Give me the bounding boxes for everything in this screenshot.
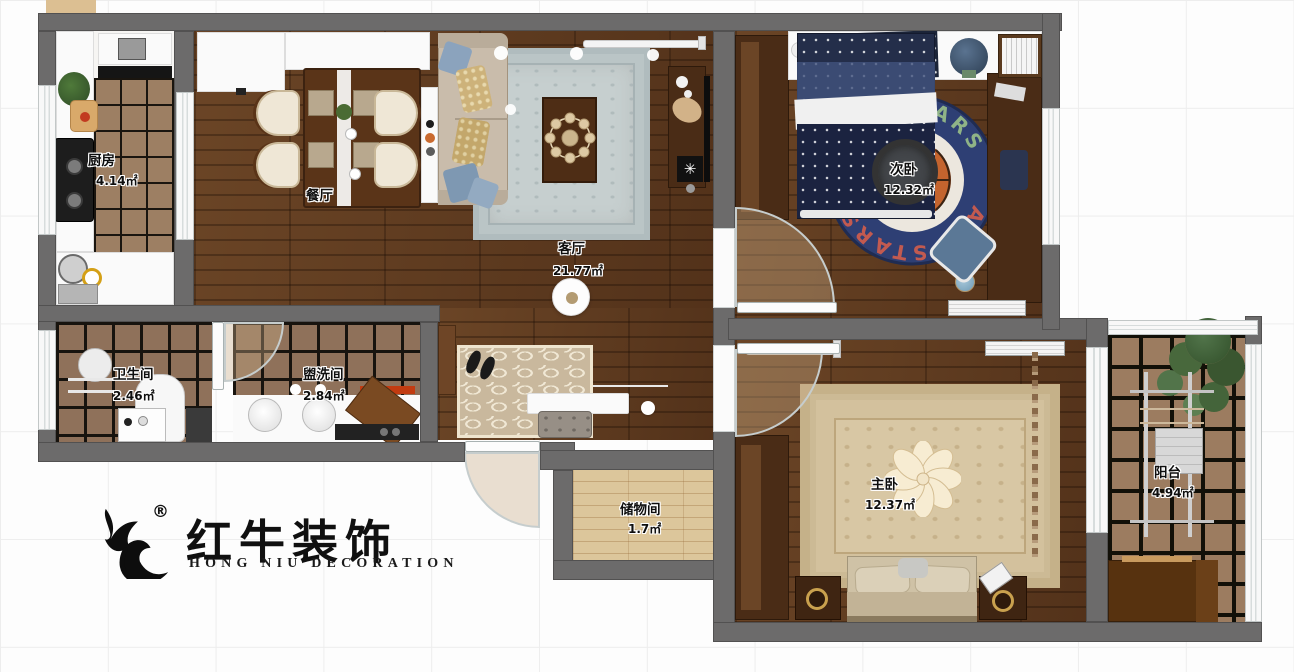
kitchen-window: [38, 85, 56, 235]
shoe-cabinet: [438, 325, 456, 395]
bed2-foot-sheet: [800, 210, 932, 218]
bedroom2-door-opening: [713, 228, 735, 308]
curtain-hook: [698, 36, 706, 50]
dining-chair: [256, 90, 300, 136]
room-label-kitchen: 厨房: [88, 149, 115, 169]
stove-burner: [66, 192, 83, 209]
washroom-mat: [335, 424, 419, 440]
nightstand-lamp: [806, 588, 828, 610]
wall-socket: [236, 88, 246, 95]
rack-crossbar: [1130, 390, 1214, 393]
wall-storage-top: [540, 450, 735, 470]
star-art-decor: ✳: [677, 156, 703, 182]
wall-bottom: [713, 622, 1262, 642]
room-label-master: 主卧: [871, 473, 898, 493]
wall-washroom-right: [420, 322, 438, 442]
tv-screen: [704, 76, 710, 182]
downlight: [570, 47, 583, 60]
neighbor-block: [46, 0, 96, 13]
nightstand-lamp: [992, 590, 1014, 612]
floor-vase: [426, 147, 435, 156]
registered-trademark: ®: [152, 502, 169, 522]
rack-crossbar: [1140, 408, 1204, 410]
washroom-sink: [248, 398, 282, 432]
wall-bath-top: [38, 305, 440, 322]
table-plant: [336, 104, 352, 120]
desk-bag: [1000, 150, 1028, 190]
chandelier-decor: [542, 110, 598, 166]
room-area-kitchen: 4.14㎡: [96, 172, 138, 189]
ceiling-lamp-center: [566, 292, 578, 304]
washer-knob: [124, 418, 132, 426]
room-label-bedroom2: 次卧: [890, 158, 917, 178]
room-area-washroom: 2.84㎡: [303, 387, 345, 404]
mat-dot: [392, 428, 400, 436]
dining-cabinet-strip: [285, 32, 430, 70]
floor-vase: [425, 133, 435, 143]
rack-crossbar: [1140, 422, 1204, 424]
tomato-decor: [80, 112, 90, 122]
washer-knob: [138, 416, 148, 426]
stove-burner: [66, 158, 83, 175]
washroom-downlight: [290, 384, 301, 395]
logo-brand-english: HONG NIU DECORATION: [189, 556, 459, 572]
room-label-bathroom: 卫生间: [113, 363, 154, 383]
master-radiator: [985, 341, 1065, 356]
downlight: [647, 49, 659, 61]
console-decor: [676, 76, 688, 88]
wall-top: [38, 13, 1062, 31]
wall-storage-bottom: [553, 560, 735, 580]
room-area-bedroom2: 12.32㎡: [884, 181, 934, 198]
cabinet-lip: [1122, 556, 1192, 562]
balcony-right-glass: [1245, 344, 1262, 622]
downlight: [494, 46, 508, 60]
rack-crossbar: [1130, 520, 1214, 523]
kitchen-box: [58, 284, 98, 304]
drying-rack-pole: [1144, 372, 1148, 537]
range-hood: [98, 66, 172, 78]
room-label-storage: 储物间: [620, 498, 661, 518]
mat-dot: [380, 428, 388, 436]
placemat: [308, 142, 334, 168]
cabinet-step: [1196, 560, 1218, 622]
room-label-living: 客厅: [558, 237, 585, 257]
kitchen-sliding-door: [176, 92, 194, 240]
books: [1002, 38, 1038, 74]
shower-head: [78, 348, 112, 382]
dining-chair: [374, 90, 418, 136]
room-area-storage: 1.7㎡: [628, 520, 661, 537]
room-area-balcony: 4.94㎡: [1152, 484, 1194, 501]
towel-rack: [68, 378, 114, 381]
bedroom2-door-leaf: [737, 302, 837, 313]
master-door-opening: [713, 345, 735, 432]
accent-pillow: [898, 558, 928, 578]
floor-vase: [426, 120, 434, 128]
range-pan: [118, 38, 146, 60]
dining-chair: [374, 142, 418, 188]
room-label-balcony: 阳台: [1154, 461, 1181, 481]
towel-rack: [68, 390, 114, 393]
master-balcony-window: [1086, 347, 1108, 533]
room-label-washroom: 盥洗间: [303, 363, 344, 383]
table-cup: [349, 168, 361, 180]
curtain-rail: [583, 40, 701, 48]
bath-step: [186, 408, 212, 442]
corridor-downlight: [641, 401, 655, 415]
room-label-dining: 餐厅: [306, 184, 333, 204]
bedroom2-wardrobe-panel: [741, 42, 759, 212]
table-cup: [345, 128, 357, 140]
downlight: [505, 104, 516, 115]
wall-between-bedrooms: [728, 318, 1090, 340]
master-wardrobe-panel: [741, 445, 761, 610]
placemat: [308, 90, 334, 116]
master-door-leaf: [737, 343, 840, 354]
room-area-bathroom: 2.46㎡: [113, 387, 155, 404]
room-area-master: 12.37㎡: [865, 496, 915, 513]
sofa-console: [421, 87, 438, 203]
entry-door-leaf: [465, 441, 540, 452]
bedroom2-window: [1042, 108, 1060, 245]
bedroom2-radiator: [948, 300, 1026, 316]
balcony-top-glass: [1108, 320, 1258, 335]
bathroom-window: [38, 330, 56, 430]
curtain-drape: [1032, 352, 1038, 557]
wall-bath-bottom: [38, 442, 465, 462]
entry-door-arc: [464, 452, 540, 528]
entry-ottoman: [538, 411, 592, 438]
floor-plan-canvas: ✳ SOMETIMES MAZE ALL STARS ALL STARS: [0, 0, 1294, 672]
room-area-living: 21.77㎡: [553, 262, 603, 279]
lamp-base: [962, 70, 976, 78]
dining-sideboard: [197, 32, 285, 92]
stone-decor: [686, 184, 695, 193]
dining-chair: [256, 142, 300, 188]
bathroom-door-leaf: [212, 322, 224, 390]
